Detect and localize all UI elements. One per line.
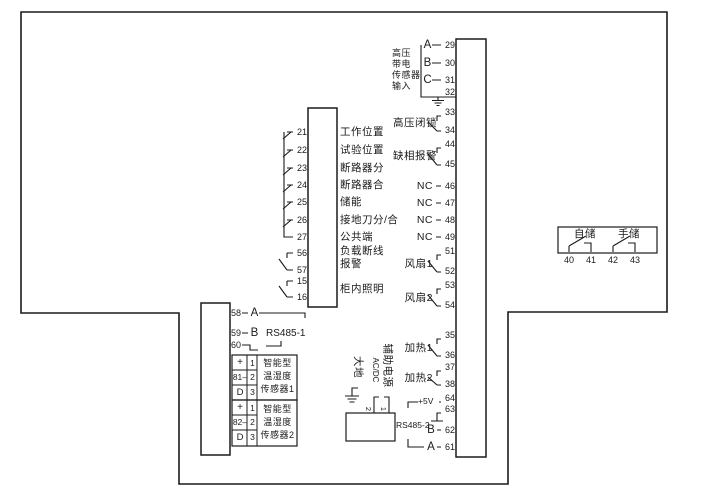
terminal-23: 23 (294, 163, 307, 173)
power-terminal-1-label: 1 (379, 404, 389, 414)
hv-input-label-line: 高压 (392, 48, 411, 59)
storage-contact-box (558, 227, 657, 253)
io-bus-and-blades (283, 132, 293, 237)
terminal-81: 81– (228, 372, 247, 382)
heater1-label: 加热1 (393, 342, 433, 354)
sensor2-pin-2: 2 (248, 417, 257, 427)
aux-power-label: 辅助电源 (383, 344, 394, 388)
rs485-1-b-label: B (249, 327, 260, 339)
rs485-2-label: RS485-2 (396, 420, 425, 430)
io-label-breaker-close: 断路器合 (340, 179, 384, 191)
terminal-26: 26 (294, 215, 307, 225)
terminal-43: 43 (628, 255, 642, 265)
phase-loss-alarm-label: 缺相报警 (393, 150, 433, 162)
io-label-common: 公共端 (340, 231, 373, 243)
terminal-16: 16 (294, 292, 307, 302)
terminal-58: 58 (231, 308, 241, 318)
terminal-44: 44 (441, 139, 455, 149)
terminal-64: 64 (441, 393, 455, 403)
terminal-48: 48 (441, 215, 455, 225)
terminal-42: 42 (606, 255, 620, 265)
terminal-37: 37 (441, 362, 455, 372)
io-label-working-position: 工作位置 (340, 126, 384, 138)
io-label-breaker-open: 断路器分 (340, 162, 384, 174)
sensor2-name-line: 温湿度 (258, 417, 297, 428)
terminal-36: 36 (441, 350, 455, 360)
terminal-15: 15 (294, 276, 307, 286)
sensor1-name-line: 智能型 (258, 358, 297, 369)
left-pair-contacts (279, 253, 293, 297)
sensor1-name-line: 温湿度 (258, 371, 297, 382)
nc-label: NC (413, 180, 433, 192)
terminal-30: 30 (441, 58, 455, 68)
acdc-label: AC/DC (371, 356, 381, 384)
sensor1-sig-plus: + (234, 357, 246, 368)
io-label-test-position: 试验位置 (340, 144, 384, 156)
terminal-22: 22 (294, 145, 307, 155)
terminal-63: 63 (441, 404, 455, 414)
terminal-27: 27 (294, 232, 307, 242)
hv-input-label-line: 传感器 (392, 70, 421, 81)
phase-c-label: C (422, 74, 433, 86)
terminal-49: 49 (441, 232, 455, 242)
plus5v-label: +5V (418, 396, 433, 406)
terminal-51: 51 (441, 246, 455, 256)
terminal-38: 38 (441, 379, 455, 389)
rs485-2-a-label: A (426, 441, 436, 453)
nc-label: NC (413, 231, 433, 243)
comm-connector-block (201, 303, 230, 455)
rs485-2-b-label: B (426, 424, 436, 436)
terminal-56: 56 (294, 248, 307, 258)
terminal-33: 33 (441, 107, 455, 117)
terminal-52: 52 (441, 266, 455, 276)
hv-lockout-label: 高压闭锁 (393, 117, 433, 129)
nc-label: NC (413, 214, 433, 226)
io-label-energy-storage: 储能 (340, 196, 362, 208)
terminal-29: 29 (441, 40, 455, 50)
terminal-47: 47 (441, 198, 455, 208)
rs485-1-label: RS485-1 (266, 328, 305, 339)
terminal-25: 25 (294, 197, 307, 207)
phase-a-label: A (422, 39, 433, 51)
terminal-41: 41 (584, 255, 598, 265)
terminal-53: 53 (441, 280, 455, 290)
fan1-label: 风扇1 (393, 258, 433, 270)
sensor1-pin-2: 2 (248, 372, 257, 382)
terminal-54: 54 (441, 300, 455, 310)
power-module-box (346, 413, 395, 441)
sensor2-name-line: 智能型 (258, 404, 297, 415)
load-break-alarm-label-line1: 负载断线 (340, 245, 384, 257)
sensor1-name-line: 传感器1 (258, 384, 297, 395)
main-terminal-block (456, 39, 486, 457)
nc-stubs (436, 186, 441, 237)
terminal-46: 46 (441, 181, 455, 191)
load-break-alarm-label-line2: 报警 (340, 258, 362, 270)
terminal-32: 32 (441, 87, 455, 97)
cabinet-light-label: 柜内照明 (340, 283, 384, 295)
sensor2-sig-plus: + (234, 402, 246, 413)
terminal-40: 40 (562, 255, 576, 265)
auto-storage-label: 自储 (574, 228, 596, 240)
sensor2-sig-d: D (234, 432, 246, 443)
hv-input-label-line: 输入 (392, 81, 411, 92)
sensor2-name-line: 传感器2 (258, 430, 297, 441)
terminal-21: 21 (294, 127, 307, 137)
sensor2-pin-3: 3 (248, 432, 257, 442)
terminal-62: 62 (441, 425, 455, 435)
sensor2-pin-1: 1 (248, 403, 257, 413)
hv-input-label-line: 带电 (392, 59, 411, 70)
terminal-31: 31 (441, 75, 455, 85)
terminal-34: 34 (441, 125, 455, 135)
terminal-59: 59 (231, 328, 241, 338)
terminal-57: 57 (294, 265, 307, 275)
earth-label: 大地 (352, 355, 364, 379)
power-terminal-2-label: 2 (364, 404, 374, 414)
terminal-24: 24 (294, 180, 307, 190)
io-connector-block (308, 108, 337, 307)
fan2-label: 风扇2 (393, 292, 433, 304)
terminal-35: 35 (441, 330, 455, 340)
terminal-45: 45 (441, 159, 455, 169)
sensor1-pin-1: 1 (248, 358, 257, 368)
io-label-earth-switch: 接地刀分/合 (340, 214, 398, 226)
terminal-61: 61 (441, 442, 455, 452)
sensor1-pin-3: 3 (248, 387, 257, 397)
heater2-label: 加热2 (393, 372, 433, 384)
manual-storage-label: 手储 (618, 228, 640, 240)
sensor1-sig-d: D (234, 387, 246, 398)
terminal-60: 60 (231, 340, 241, 350)
terminal-82: 82– (228, 417, 247, 427)
nc-label: NC (413, 197, 433, 209)
phase-b-label: B (422, 57, 433, 69)
wiring-diagram: 高压 带电 传感器 输入 A 29 B 30 C 31 32 高压闭锁 33 3… (0, 0, 720, 500)
rs485-1-a-label: A (249, 307, 260, 319)
